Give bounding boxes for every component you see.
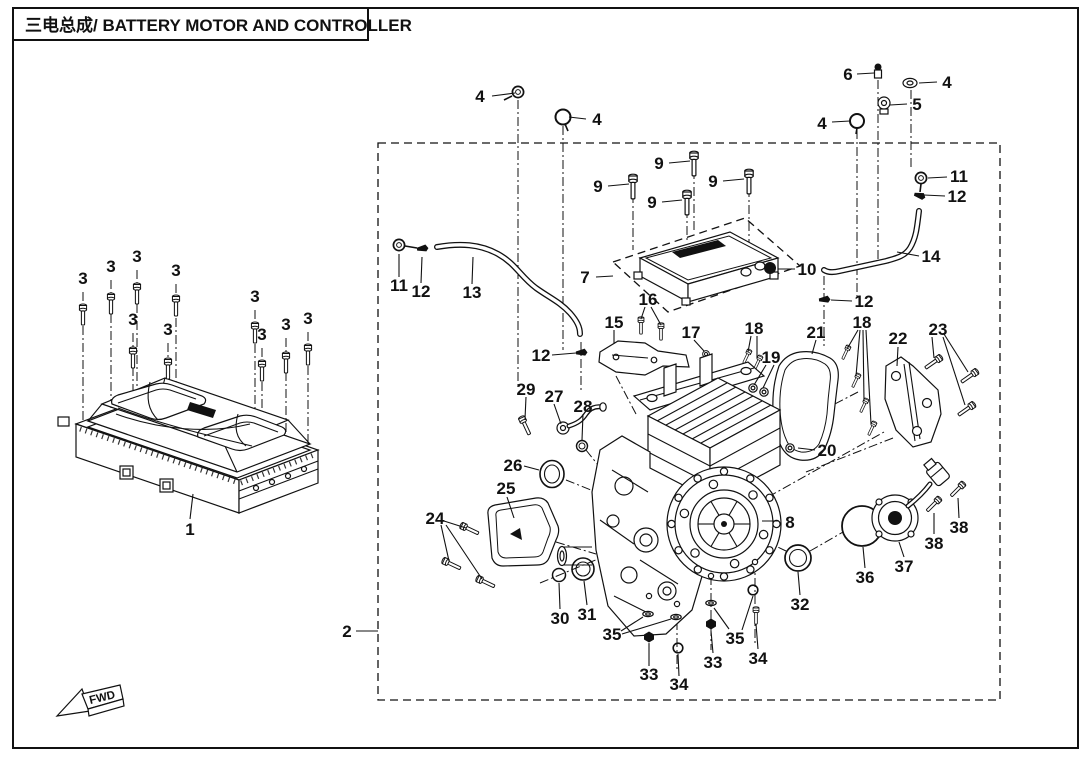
callout-11-18: 11	[950, 167, 968, 186]
parts-diagram: 三电总成/ BATTERY MOTOR AND CONTROLLER	[0, 0, 1090, 760]
callout-27-43: 27	[545, 387, 564, 406]
callout-25-46: 25	[497, 479, 516, 498]
callout-14-20: 14	[922, 247, 941, 266]
callout-20-41: 20	[818, 441, 837, 460]
callout-11-27: 11	[390, 276, 408, 295]
callout-21-37: 21	[807, 323, 826, 342]
callout-3-1: 3	[106, 257, 115, 276]
coolant-tube-right	[819, 172, 927, 303]
callout-15-32: 15	[605, 313, 624, 332]
controller-drawing	[613, 151, 800, 312]
callout-16-33: 16	[639, 290, 658, 309]
callout-26-45: 26	[504, 456, 523, 475]
callout-9-21: 9	[593, 177, 602, 196]
callout-18-35: 18	[745, 319, 764, 338]
callout-10-26: 10	[798, 260, 817, 279]
callout-18-38: 18	[853, 313, 872, 332]
callout-3-0: 3	[78, 269, 87, 288]
callout-3-5: 3	[163, 320, 172, 339]
callout-3-6: 3	[250, 287, 259, 306]
callout-28-44: 28	[574, 397, 593, 416]
callout-12-30: 12	[532, 346, 551, 365]
callout-33-51: 33	[640, 665, 659, 684]
callout-37-59: 37	[895, 557, 914, 576]
callout-9-23: 9	[708, 172, 717, 191]
knob-item-10	[764, 262, 776, 274]
battery-bolts	[79, 283, 311, 381]
callout-3-7: 3	[257, 325, 266, 344]
callout-30-48: 30	[551, 609, 570, 628]
title-block: 三电总成/ BATTERY MOTOR AND CONTROLLER	[13, 8, 412, 40]
callout-17-34: 17	[682, 323, 701, 342]
callout-32-57: 32	[791, 595, 810, 614]
callout-4-13: 4	[592, 110, 602, 129]
callout-36-58: 36	[856, 568, 875, 587]
callout-2-11: 2	[342, 622, 351, 641]
callout-3-3: 3	[171, 261, 180, 280]
callout-3-4: 3	[128, 310, 137, 329]
callout-7-25: 7	[580, 268, 589, 287]
top-fasteners	[504, 64, 917, 135]
callout-34-52: 34	[670, 675, 689, 694]
page-title: 三电总成/ BATTERY MOTOR AND CONTROLLER	[25, 15, 412, 35]
diagram-page: 三电总成/ BATTERY MOTOR AND CONTROLLER	[0, 0, 1090, 760]
callout-23-40: 23	[929, 320, 948, 339]
callout-6-14: 6	[843, 65, 852, 84]
callout-38-60: 38	[925, 534, 944, 553]
callout-3-9: 3	[303, 309, 312, 328]
callout-13-29: 13	[463, 283, 482, 302]
callout-29-42: 29	[517, 380, 536, 399]
callout-4-12: 4	[475, 87, 485, 106]
battery-pack-drawing	[58, 378, 318, 513]
callout-4-17: 4	[817, 114, 827, 133]
callout-31-49: 31	[578, 605, 597, 624]
callout-9-24: 9	[647, 193, 656, 212]
fwd-direction-marker: FWD	[57, 685, 124, 716]
leader-lines	[190, 73, 968, 676]
callout-35-53: 35	[726, 629, 745, 648]
callout-12-19: 12	[948, 187, 967, 206]
callout-3-2: 3	[132, 247, 141, 266]
callout-33-54: 33	[704, 653, 723, 672]
callout-5-16: 5	[912, 95, 921, 114]
callout-34-55: 34	[749, 649, 768, 668]
callout-38-61: 38	[950, 518, 969, 537]
callout-35-50: 35	[603, 625, 622, 644]
callout-4-15: 4	[942, 73, 952, 92]
callout-22-39: 22	[889, 329, 908, 348]
callout-8-56: 8	[785, 513, 794, 532]
callout-12-31: 12	[855, 292, 874, 311]
right-small-parts	[785, 457, 966, 571]
left-small-parts	[441, 403, 606, 590]
callout-24-47: 24	[426, 509, 445, 528]
callout-19-36: 19	[762, 348, 781, 367]
callout-9-22: 9	[654, 154, 663, 173]
callout-12-28: 12	[412, 282, 431, 301]
callout-3-8: 3	[281, 315, 290, 334]
callout-1-10: 1	[185, 520, 194, 539]
